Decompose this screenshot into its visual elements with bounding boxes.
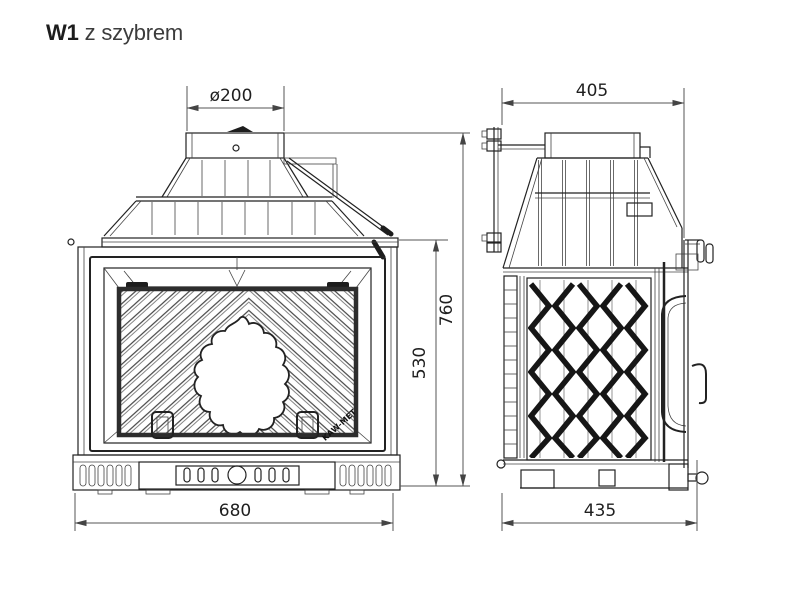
- dim-label-side-top-width: 405: [576, 81, 608, 101]
- vent-grille-left: [80, 465, 131, 486]
- vent-grille-right: [340, 465, 391, 486]
- side-door: [655, 240, 713, 468]
- front-door-glass: KAW-MET: [119, 289, 359, 443]
- dim-side-top-width: 405: [502, 81, 684, 238]
- damper-handle-icon: [374, 242, 383, 257]
- front-plinth: [73, 455, 400, 494]
- dim-label-front-width: 680: [219, 501, 251, 521]
- front-top-plate: [68, 238, 398, 247]
- front-hood: [104, 158, 364, 236]
- air-control-panel: [176, 466, 299, 485]
- front-flue-collar: [186, 126, 284, 158]
- dim-label-side-bottom-depth: 435: [584, 501, 616, 521]
- side-body: [503, 268, 688, 460]
- ash-door-knob-icon: [696, 472, 708, 484]
- air-control-knob-icon: [228, 466, 246, 484]
- side-hood: [503, 158, 682, 268]
- technical-drawing-page: W1z szybrem: [0, 0, 800, 600]
- damper-lever-icon: [227, 126, 253, 132]
- drawing-canvas: KAW-MET: [0, 0, 800, 600]
- side-flue-collar: [545, 133, 650, 158]
- side-view: [482, 127, 713, 490]
- dim-front-width: 680: [75, 493, 393, 531]
- side-base: [497, 460, 708, 490]
- front-view: KAW-MET: [68, 126, 400, 494]
- dim-flue-diameter: ø200: [187, 86, 284, 131]
- dim-label-overall-height: 760: [437, 294, 457, 326]
- dim-label-firebox-height: 530: [410, 347, 430, 379]
- hinge-pin-icon: [68, 239, 74, 245]
- dim-firebox-height: 530: [399, 240, 448, 486]
- dim-label-flue-diameter: ø200: [210, 86, 253, 106]
- side-rear-ribs: [504, 276, 517, 458]
- heat-exchanger-fins: [531, 280, 645, 458]
- door-handle-icon: [692, 364, 706, 403]
